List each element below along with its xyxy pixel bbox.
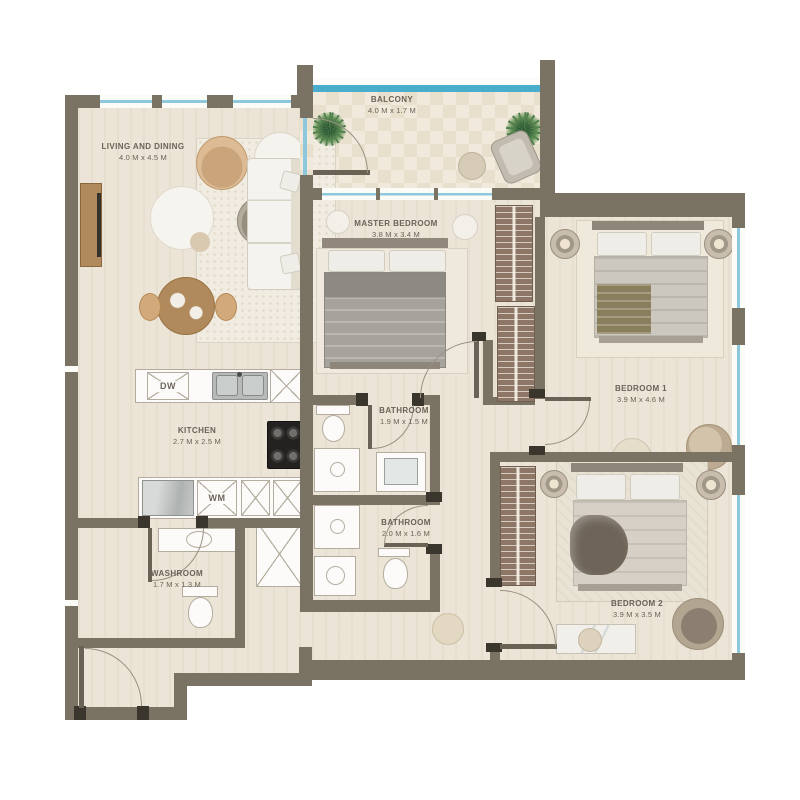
washroom-toilet-bowl [188, 597, 213, 628]
wall-bath2-bottom [300, 600, 440, 612]
washing-machine-label: WM [207, 493, 228, 504]
bedroom2-bed-foot [578, 584, 682, 591]
bath2-door-post-1 [426, 492, 442, 502]
wall-left [65, 95, 78, 720]
balcony-door-glass [303, 118, 307, 175]
wall-balcony-right [540, 60, 555, 193]
pantry-cabinet [256, 521, 303, 587]
wall-bedroom2-left-a [490, 462, 500, 584]
window-right-1 [732, 228, 745, 308]
balcony-glass-balustrade [300, 85, 545, 92]
master-bed-duvet [324, 272, 446, 368]
label-balcony-dims: 4.0 M x 1.7 M [322, 106, 462, 116]
entry-door-leaf [79, 646, 84, 708]
master-bed-foot [330, 362, 440, 369]
bedroom2-pouf [578, 628, 602, 652]
wall-bedroom1-left [535, 217, 545, 399]
bedroom1-nightstand-1 [550, 229, 580, 259]
sink-bowl-1 [216, 375, 238, 396]
pouf-living [190, 232, 210, 252]
bedroom1-door-post-1 [529, 389, 545, 398]
label-living-name: LIVING AND DINING [73, 142, 213, 153]
bedroom1-headboard [592, 221, 704, 230]
label-bathroom2-dims: 2.0 M x 1.6 M [336, 529, 476, 539]
bedroom2-throw-dark [570, 515, 628, 575]
label-bathroom1-name: BATHROOM [334, 406, 474, 417]
hallway-pouf [432, 613, 464, 645]
wall-washroom-top-b [198, 518, 312, 528]
label-bedroom1-name: BEDROOM 1 [571, 384, 711, 395]
wall-master-right [483, 340, 493, 400]
bedroom2-door-post-1 [486, 578, 502, 587]
label-living-dims: 4.0 M x 4.5 M [73, 153, 213, 163]
dining-chair-2 [215, 293, 237, 321]
window-top-3 [233, 95, 291, 108]
dining-chair-1 [139, 293, 161, 321]
wall-bedrooms-top [540, 193, 745, 217]
label-bedroom1: BEDROOM 1 3.9 M x 4.6 M [571, 384, 711, 405]
sink-faucet [237, 372, 242, 377]
mask-top-right [555, 108, 732, 193]
label-bathroom2-name: BATHROOM [336, 518, 476, 529]
washroom-door-post-1 [138, 516, 150, 528]
label-bedroom2-dims: 3.9 M x 3.5 M [567, 610, 707, 620]
wall-joint-tick-2 [65, 600, 78, 606]
wall-bottom-right [299, 660, 745, 680]
stove [267, 421, 303, 469]
dining-table [157, 277, 215, 335]
washroom-door-post-2 [196, 516, 208, 528]
sink-bowl-2 [242, 375, 264, 396]
dishwasher: DW [147, 372, 189, 400]
tv-icon [97, 193, 101, 257]
master-door-post [472, 332, 486, 341]
label-washroom: WASHROOM 1.7 M x 1.3 M [107, 569, 247, 590]
bedroom1-pillow-2 [651, 232, 701, 256]
label-bathroom1: BATHROOM 1.9 M x 1.5 M [334, 406, 474, 427]
label-kitchen-dims: 2.7 M x 2.5 M [127, 437, 267, 447]
washing-machine: WM [197, 480, 237, 516]
bedroom2-nightstand-1 [540, 470, 568, 498]
window-top-1 [100, 95, 152, 108]
bedroom1-pillow-1 [597, 232, 647, 256]
wall-bottom-mid [174, 673, 312, 686]
bedroom2-pillow-2 [630, 474, 680, 500]
label-bathroom1-dims: 1.9 M x 1.5 M [334, 417, 474, 427]
label-living: LIVING AND DINING 4.0 M x 4.5 M [73, 142, 213, 163]
label-balcony: BALCONY 4.0 M x 1.7 M [322, 95, 462, 116]
balcony-table [458, 152, 486, 180]
window-right-3 [732, 495, 745, 653]
bedroom1-nightstand-2 [704, 229, 734, 259]
master-pillow-1 [328, 250, 385, 272]
wardrobe-2 [497, 306, 535, 402]
label-kitchen-name: KITCHEN [127, 426, 267, 437]
bath2-toilet-bowl [383, 558, 408, 589]
bedroom2-pillow-1 [576, 474, 626, 500]
label-washroom-dims: 1.7 M x 1.3 M [107, 580, 247, 590]
window-top-2 [162, 95, 207, 108]
window-master-2 [380, 188, 434, 200]
wall-washroom-bottom [78, 638, 245, 648]
entry-door-post-1 [74, 706, 86, 720]
window-master-1 [322, 188, 376, 200]
label-bathroom2: BATHROOM 2.0 M x 1.6 M [336, 518, 476, 539]
label-master-name: MASTER BEDROOM [326, 219, 466, 230]
bath2-basin [326, 566, 345, 585]
wardrobe-3 [500, 466, 536, 586]
bedroom1-bed-foot [599, 336, 703, 343]
label-kitchen: KITCHEN 2.7 M x 2.5 M [127, 426, 267, 447]
label-bedroom1-dims: 3.9 M x 4.6 M [571, 395, 711, 405]
bedroom1-throw [597, 284, 651, 334]
window-master-3 [438, 188, 492, 200]
label-washroom-name: WASHROOM [107, 569, 247, 580]
bath1-shower-head [330, 462, 345, 477]
dishwasher-label: DW [158, 381, 178, 392]
fridge [142, 480, 194, 516]
label-balcony-name: BALCONY [322, 95, 462, 106]
floor-plan: DW WM [0, 0, 800, 800]
wardrobe-1 [495, 205, 533, 302]
master-pillow-2 [389, 250, 446, 272]
bath1-door-post-1 [356, 393, 368, 406]
entry-door-post-2 [137, 706, 149, 720]
bath2-toilet-tank [378, 548, 410, 557]
sofa-pillow-2 [279, 252, 302, 275]
bath1-basin [384, 458, 418, 485]
kitchen-cabinet-2 [241, 480, 270, 516]
bedroom2-nightstand-2 [696, 470, 726, 500]
kitchen-cabinet-1 [270, 369, 303, 403]
bath2-door-post-2 [426, 544, 442, 554]
label-master: MASTER BEDROOM 3.8 M x 3.4 M [326, 219, 466, 240]
wall-bath-divider [313, 495, 440, 505]
wall-joint-tick-1 [65, 366, 78, 372]
window-right-2 [732, 345, 745, 445]
bedroom2-headboard [571, 463, 683, 472]
kitchen-cabinet-3 [273, 480, 302, 516]
bedroom1-door-post-2 [529, 446, 545, 455]
label-master-dims: 3.8 M x 3.4 M [326, 230, 466, 240]
label-bedroom2: BEDROOM 2 3.9 M x 3.5 M [567, 599, 707, 620]
label-bedroom2-name: BEDROOM 2 [567, 599, 707, 610]
